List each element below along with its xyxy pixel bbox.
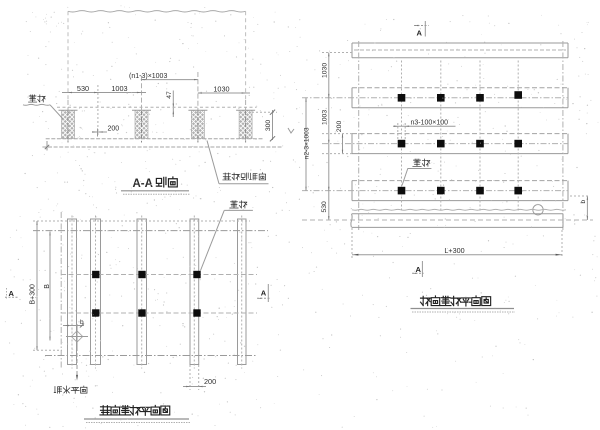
- svg-text:1003: 1003: [111, 84, 127, 93]
- svg-text:530: 530: [321, 201, 328, 213]
- svg-text:1003: 1003: [322, 110, 329, 125]
- svg-text:200: 200: [108, 125, 120, 132]
- svg-text:n3-100×100: n3-100×100: [411, 120, 449, 127]
- svg-text:B: B: [44, 284, 51, 289]
- svg-text:b: b: [80, 319, 84, 326]
- svg-text:200: 200: [336, 121, 343, 133]
- svg-text:A-A: A-A: [133, 178, 153, 190]
- svg-text:A: A: [261, 288, 267, 297]
- svg-text:47: 47: [166, 91, 173, 99]
- svg-text:A: A: [417, 28, 423, 37]
- svg-text:1030: 1030: [213, 85, 229, 94]
- svg-text:530: 530: [77, 84, 89, 93]
- svg-text:n2-3×1003: n2-3×1003: [304, 127, 311, 159]
- svg-text:A: A: [9, 289, 15, 298]
- svg-text:B+300: B+300: [30, 284, 37, 305]
- svg-text:L+300: L+300: [444, 246, 464, 255]
- svg-text:200: 200: [204, 377, 216, 386]
- svg-text:(n1-3)×1003: (n1-3)×1003: [129, 73, 167, 80]
- svg-text:300: 300: [265, 120, 272, 132]
- svg-text:A: A: [416, 265, 422, 274]
- svg-text:1030: 1030: [322, 63, 329, 78]
- svg-text:b: b: [580, 200, 587, 204]
